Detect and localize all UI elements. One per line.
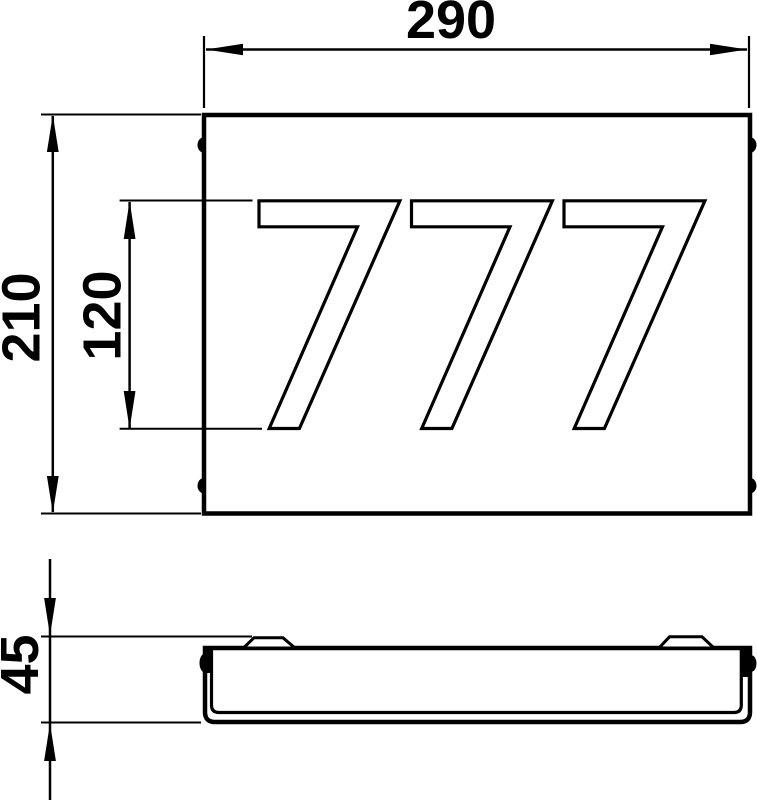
svg-text:290: 290 bbox=[406, 0, 496, 50]
svg-text:45: 45 bbox=[0, 634, 50, 694]
svg-text:120: 120 bbox=[72, 270, 132, 360]
svg-text:210: 210 bbox=[0, 272, 52, 362]
